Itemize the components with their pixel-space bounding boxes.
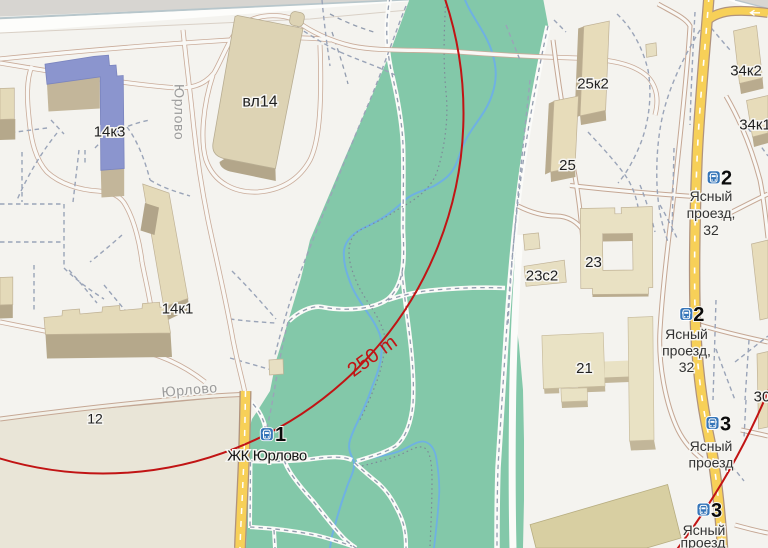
- svg-text:2: 2: [693, 304, 704, 326]
- svg-text:3: 3: [720, 414, 731, 436]
- svg-text:25: 25: [559, 157, 576, 174]
- svg-text:проезд,: проезд,: [662, 343, 711, 359]
- svg-text:14к3: 14к3: [94, 124, 126, 141]
- svg-text:Юрлово: Юрлово: [172, 84, 188, 140]
- svg-text:12: 12: [87, 411, 103, 427]
- svg-text:Ясный: Ясный: [690, 188, 733, 204]
- svg-text:23с2: 23с2: [526, 268, 559, 285]
- svg-text:3: 3: [711, 500, 722, 522]
- svg-text:23: 23: [585, 254, 602, 271]
- svg-text:14к1: 14к1: [162, 301, 194, 318]
- svg-text:32: 32: [679, 359, 695, 375]
- svg-text:30: 30: [754, 389, 768, 406]
- svg-text:21: 21: [576, 360, 593, 377]
- svg-text:Ясный: Ясный: [665, 326, 708, 342]
- svg-text:34к2: 34к2: [730, 63, 762, 80]
- svg-text:ЖК Юрлово: ЖК Юрлово: [227, 447, 307, 464]
- svg-text:2: 2: [721, 168, 732, 190]
- svg-text:32: 32: [703, 222, 719, 238]
- svg-text:34к1: 34к1: [739, 117, 768, 134]
- svg-text:вл14: вл14: [242, 94, 277, 111]
- svg-text:проезд: проезд: [689, 455, 734, 471]
- svg-text:1: 1: [275, 424, 286, 446]
- svg-text:проезд: проезд: [681, 535, 726, 548]
- svg-text:25к2: 25к2: [577, 76, 609, 93]
- svg-text:проезд,: проезд,: [687, 205, 736, 221]
- svg-text:Ясный: Ясный: [690, 438, 733, 454]
